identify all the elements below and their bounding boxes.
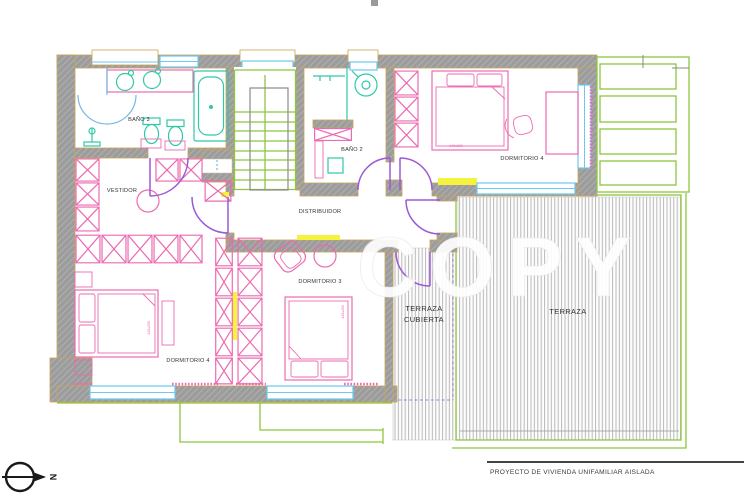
- bay-window: [92, 50, 158, 65]
- floor-plan-page: 140x200 140x200 140x200: [0, 0, 744, 500]
- room-label-distribuidor: DISTRIBUIDOR: [299, 209, 342, 215]
- room-label-terraza-cubierta-2: CUBIERTA: [404, 315, 444, 324]
- room-label-dormitorio4-right: DORMITORIO 4: [500, 156, 543, 162]
- north-label: N: [48, 474, 58, 481]
- bed-size-label: 140x200: [147, 321, 151, 335]
- bed-size-label: 140x200: [449, 144, 463, 148]
- floor-plan-svg: 140x200 140x200 140x200: [0, 0, 744, 500]
- bath2-window: [350, 62, 377, 70]
- top-reference-mark: [371, 0, 378, 6]
- room-label-dormitorio3: DORMITORIO 3: [298, 279, 341, 285]
- room-label-vestidor: VESTIDOR: [107, 188, 137, 194]
- project-title: PROYECTO DE VIVIENDA UNIFAMILIAR AISLADA: [490, 469, 655, 476]
- bath2-window-recess: [348, 50, 378, 62]
- watermark: COPY: [357, 220, 643, 314]
- staircase: [234, 67, 296, 190]
- room-label-bano3: BAÑO 3: [128, 116, 150, 123]
- bed-size-label: 140x200: [341, 305, 345, 319]
- room-label-bano2: BAÑO 2: [341, 146, 363, 153]
- stair-window-recess: [240, 50, 295, 62]
- room-label-dormitorio4-left: DORMITORIO 4: [166, 358, 209, 364]
